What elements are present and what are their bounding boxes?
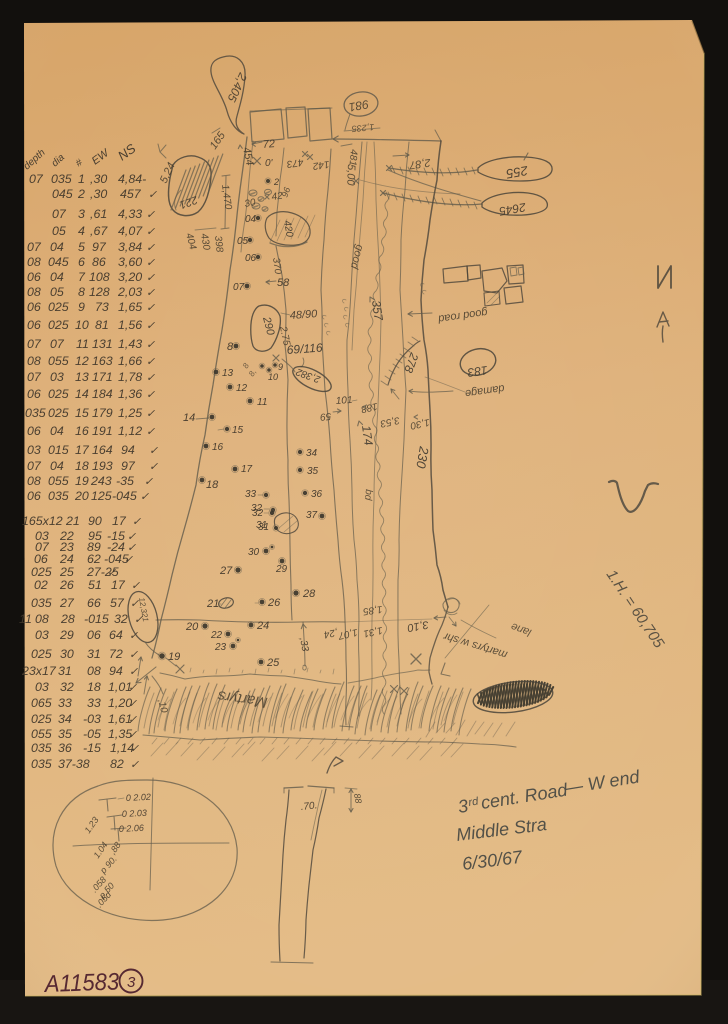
svg-text:.70.: .70. xyxy=(300,800,318,813)
svg-text:bd: bd xyxy=(362,489,374,501)
svg-text:0 2.02: 0 2.02 xyxy=(126,792,152,803)
svg-text:24: 24 xyxy=(256,620,269,632)
svg-text:101: 101 xyxy=(335,395,352,407)
svg-text:0 2.03: 0 2.03 xyxy=(122,808,148,819)
svg-text:03537-3882✓: 03537-3882✓ xyxy=(31,757,140,771)
svg-text:07: 07 xyxy=(233,282,245,293)
svg-text:12: 12 xyxy=(236,383,248,394)
svg-text:357: 357 xyxy=(369,299,386,322)
svg-text:14: 14 xyxy=(183,412,195,424)
svg-text:25: 25 xyxy=(266,657,280,669)
svg-text:37: 37 xyxy=(306,510,318,521)
svg-text:31: 31 xyxy=(258,522,269,533)
svg-text:05: 05 xyxy=(237,236,249,247)
svg-text:06: 06 xyxy=(245,253,257,264)
svg-text:48/90: 48/90 xyxy=(289,308,318,322)
svg-text:35: 35 xyxy=(307,466,319,477)
svg-text:8: 8 xyxy=(227,341,234,353)
svg-text:16: 16 xyxy=(212,442,224,453)
svg-text:03536-151,14✓: 03536-151,14✓ xyxy=(31,741,140,755)
svg-text:A11583: A11583 xyxy=(42,968,119,998)
svg-text:29: 29 xyxy=(275,564,288,575)
svg-text:20: 20 xyxy=(185,621,199,633)
svg-text:69/116: 69/116 xyxy=(286,341,323,357)
svg-text:21: 21 xyxy=(206,598,219,610)
svg-text:0': 0' xyxy=(265,158,274,169)
svg-text:27: 27 xyxy=(219,565,233,577)
svg-text:17: 17 xyxy=(241,464,253,475)
svg-text:04: 04 xyxy=(245,214,257,225)
svg-text:02534-031,61✓: 02534-031,61✓ xyxy=(31,712,138,726)
svg-text:398: 398 xyxy=(212,235,225,253)
svg-text:59: 59 xyxy=(319,410,331,422)
svg-text:183: 183 xyxy=(466,363,488,380)
svg-text:0 2.06: 0 2.06 xyxy=(119,823,145,834)
svg-text:1,235: 1,235 xyxy=(350,122,374,134)
svg-text:34: 34 xyxy=(306,448,318,459)
svg-text:18: 18 xyxy=(206,479,219,491)
svg-text:11: 11 xyxy=(257,397,267,408)
svg-text:32: 32 xyxy=(252,508,264,519)
svg-text:33: 33 xyxy=(245,489,257,500)
svg-text:36: 36 xyxy=(311,489,323,500)
svg-text:88: 88 xyxy=(352,793,364,805)
svg-text:05535-051,35✓: 05535-051,35✓ xyxy=(31,727,138,741)
svg-text:5,00: 5,00 xyxy=(344,164,357,187)
svg-text:2: 2 xyxy=(273,177,279,187)
svg-text:9: 9 xyxy=(278,362,283,372)
svg-text:30: 30 xyxy=(248,547,260,558)
svg-text:10: 10 xyxy=(268,372,278,382)
svg-text:26: 26 xyxy=(267,597,281,609)
svg-text:22: 22 xyxy=(210,630,223,641)
svg-text:72: 72 xyxy=(262,138,275,151)
svg-text:15: 15 xyxy=(232,425,244,436)
svg-text:3: 3 xyxy=(127,974,136,991)
svg-text:28: 28 xyxy=(302,588,316,600)
svg-text:23: 23 xyxy=(214,642,227,653)
svg-text:13: 13 xyxy=(222,368,234,379)
svg-text:174: 174 xyxy=(359,424,376,446)
